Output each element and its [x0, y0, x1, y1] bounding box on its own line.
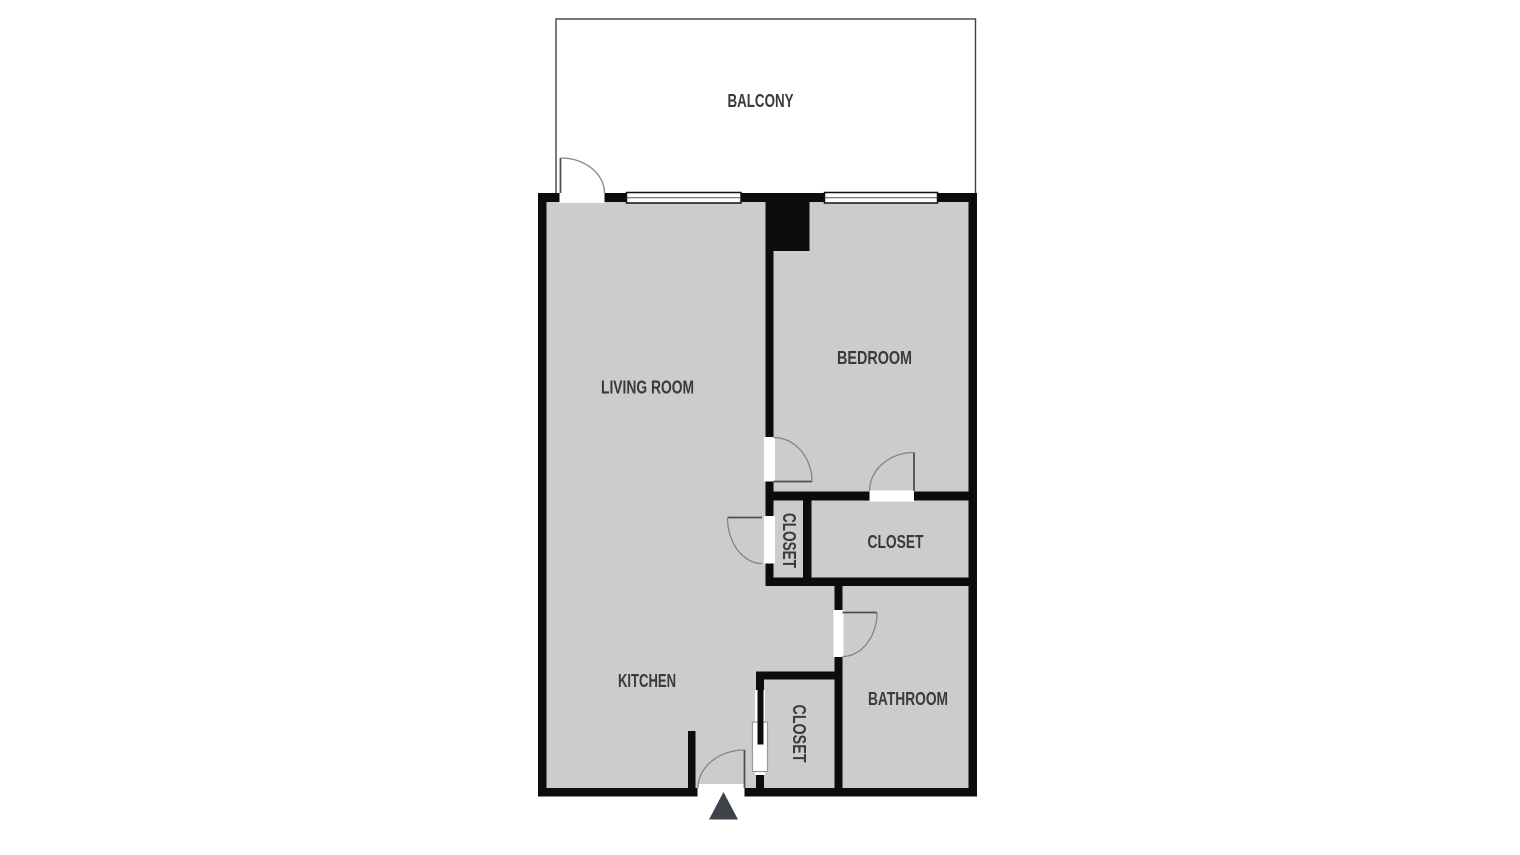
svg-text:CLOSET: CLOSET	[789, 705, 809, 763]
svg-text:LIVING ROOM: LIVING ROOM	[601, 378, 694, 398]
svg-text:BALCONY: BALCONY	[728, 91, 794, 111]
svg-text:CLOSET: CLOSET	[868, 532, 924, 552]
svg-text:CLOSET: CLOSET	[779, 513, 799, 568]
svg-text:KITCHEN: KITCHEN	[618, 671, 676, 691]
svg-text:BATHROOM: BATHROOM	[868, 689, 948, 709]
svg-text:BEDROOM: BEDROOM	[837, 348, 912, 368]
